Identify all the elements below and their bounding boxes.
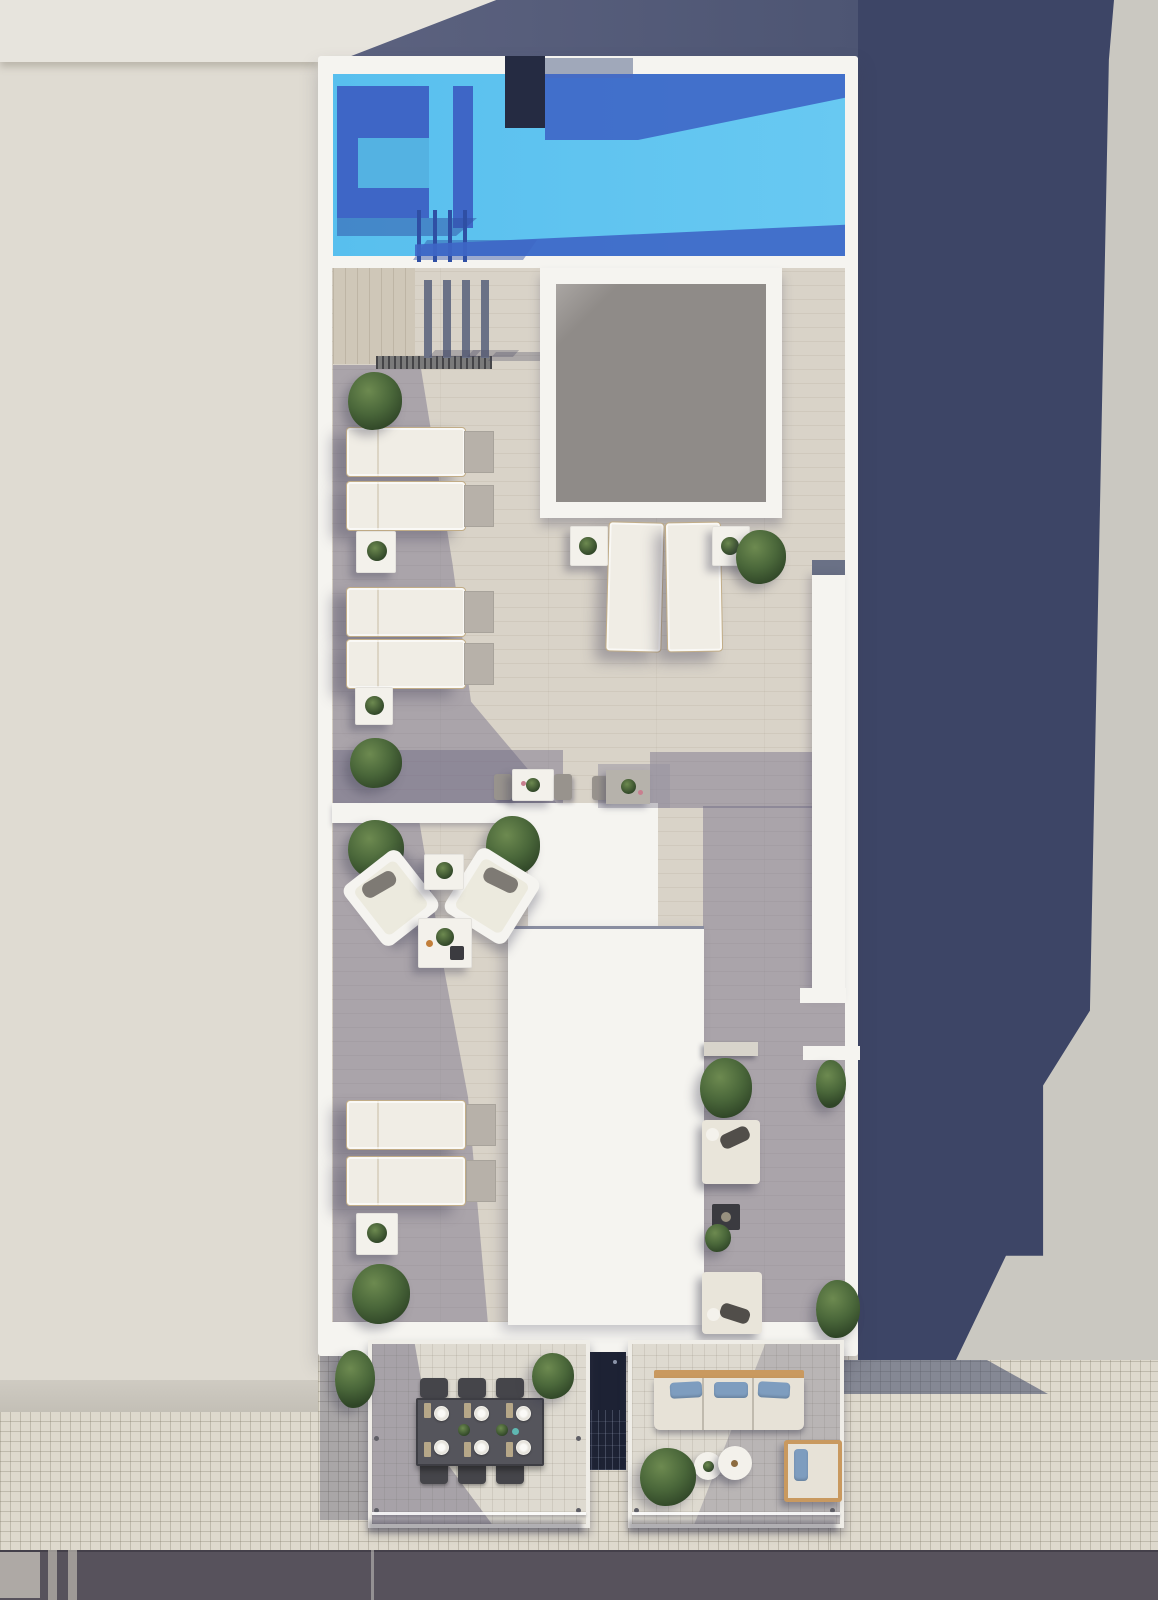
roof-block-lower	[508, 926, 704, 1325]
flower	[521, 781, 526, 786]
potted-plant	[579, 537, 597, 555]
plate	[434, 1440, 449, 1455]
glass-vent-dot	[613, 1360, 617, 1364]
dining-chair	[496, 1378, 524, 1398]
armchair-pillow	[794, 1449, 808, 1481]
daybed	[702, 1272, 762, 1334]
table-decor	[731, 1460, 738, 1467]
lounger-side-table	[464, 591, 494, 633]
sun-lounger	[346, 481, 466, 531]
coffee-table	[424, 854, 464, 890]
plant-table	[356, 531, 396, 573]
plate	[474, 1440, 489, 1455]
sidewalk-left	[0, 1412, 330, 1552]
daybed-pillow	[718, 1302, 751, 1326]
terrace-armchair	[784, 1440, 842, 1502]
roof-block-upper	[528, 803, 658, 933]
placemat	[424, 1442, 431, 1457]
balcony-lounge	[628, 1340, 844, 1528]
plate	[516, 1440, 531, 1455]
pergola-post	[424, 280, 432, 358]
neighbour-building-left	[0, 0, 320, 1412]
pergola-post	[443, 280, 451, 358]
pool-divider-wall	[453, 86, 473, 228]
daybed-pillow	[718, 1124, 752, 1150]
placemat	[464, 1403, 471, 1418]
placemat	[506, 1442, 513, 1457]
lounger-side-table	[466, 1104, 496, 1146]
sofa-pillow	[758, 1381, 791, 1399]
sun-lounger	[605, 521, 664, 652]
table-plant	[436, 862, 453, 879]
flower	[638, 790, 643, 795]
road	[0, 1550, 1158, 1600]
road-marking-stripe	[68, 1550, 77, 1600]
railing-post	[576, 1436, 581, 1441]
bistro-table	[512, 769, 554, 801]
table-plant	[703, 1461, 714, 1472]
plant-table	[355, 687, 393, 725]
lounger-side-table	[466, 1160, 496, 1202]
plate	[516, 1406, 531, 1421]
plate	[474, 1406, 489, 1421]
lounger-side-table	[464, 431, 494, 473]
round-cushion	[707, 1308, 720, 1321]
fire-bowl	[721, 1212, 731, 1222]
sofa	[654, 1370, 804, 1430]
placemat	[464, 1442, 471, 1457]
potted-plant	[367, 541, 387, 561]
right-strip-end-bar	[800, 988, 846, 1003]
pool-bench-notch	[358, 138, 429, 188]
pool-bench-shadow	[337, 218, 477, 236]
pergola-post	[462, 280, 470, 358]
bistro-chair	[494, 774, 512, 800]
plate	[434, 1406, 449, 1421]
road-marking-slab	[0, 1552, 40, 1598]
sun-lounger	[346, 587, 466, 637]
decor-tray	[450, 946, 464, 960]
glass-railing	[372, 1512, 586, 1515]
floor-grate	[376, 356, 492, 369]
post-shadow	[467, 350, 519, 357]
daybed	[702, 1120, 760, 1184]
right-strip-end-bar	[803, 1046, 860, 1060]
right-strip-cap	[812, 560, 845, 575]
table-plant	[436, 928, 454, 946]
bench	[704, 1042, 758, 1056]
lounger-side-table	[464, 643, 494, 685]
neighbour-roof-upper-band	[0, 0, 320, 62]
bush	[640, 1448, 696, 1506]
round-cushion	[706, 1128, 719, 1141]
lounger-side-table	[464, 485, 494, 527]
sun-lounger	[346, 639, 466, 689]
skylight-glass	[556, 284, 766, 502]
road-lane-line	[371, 1550, 374, 1600]
road-marking-stripe	[48, 1550, 57, 1600]
placemat	[506, 1403, 513, 1418]
plant-table	[570, 526, 608, 566]
glass-grid	[584, 1410, 626, 1470]
rooftop-terrace-render	[0, 0, 1158, 1600]
sun-lounger	[346, 427, 466, 477]
coffee-table	[418, 918, 472, 968]
balcony-cast-shadow	[628, 1520, 836, 1532]
glass-railing	[632, 1512, 840, 1515]
table-plant	[526, 778, 540, 792]
neighbour-facade-strip	[0, 1380, 330, 1412]
right-wall-strip	[812, 575, 845, 999]
centerpiece-plant	[496, 1424, 508, 1436]
sun-lounger	[346, 1156, 466, 1206]
sofa-pillow	[714, 1382, 748, 1398]
balcony-cast-shadow	[368, 1520, 582, 1532]
flower	[426, 940, 433, 947]
potted-plant	[365, 696, 384, 715]
placemat	[424, 1403, 431, 1418]
potted-plant	[367, 1223, 387, 1243]
dining-table	[416, 1398, 544, 1466]
plant-table	[356, 1213, 398, 1255]
pool-dark-structure	[505, 56, 545, 128]
sun-lounger	[346, 1100, 466, 1150]
railing-post	[374, 1436, 379, 1441]
bistro-table	[606, 770, 650, 804]
sofa-pillow	[670, 1381, 703, 1399]
bistro-chair	[554, 774, 572, 800]
round-table	[718, 1446, 752, 1480]
stairwell-glass-roof	[584, 1352, 626, 1470]
pergola-post	[481, 280, 489, 358]
dining-chair	[420, 1378, 448, 1398]
centerpiece-cup	[512, 1428, 519, 1435]
centerpiece-plant	[458, 1424, 470, 1436]
dining-chair	[458, 1378, 486, 1398]
table-plant	[621, 779, 636, 794]
deck-plank-band	[333, 268, 415, 364]
